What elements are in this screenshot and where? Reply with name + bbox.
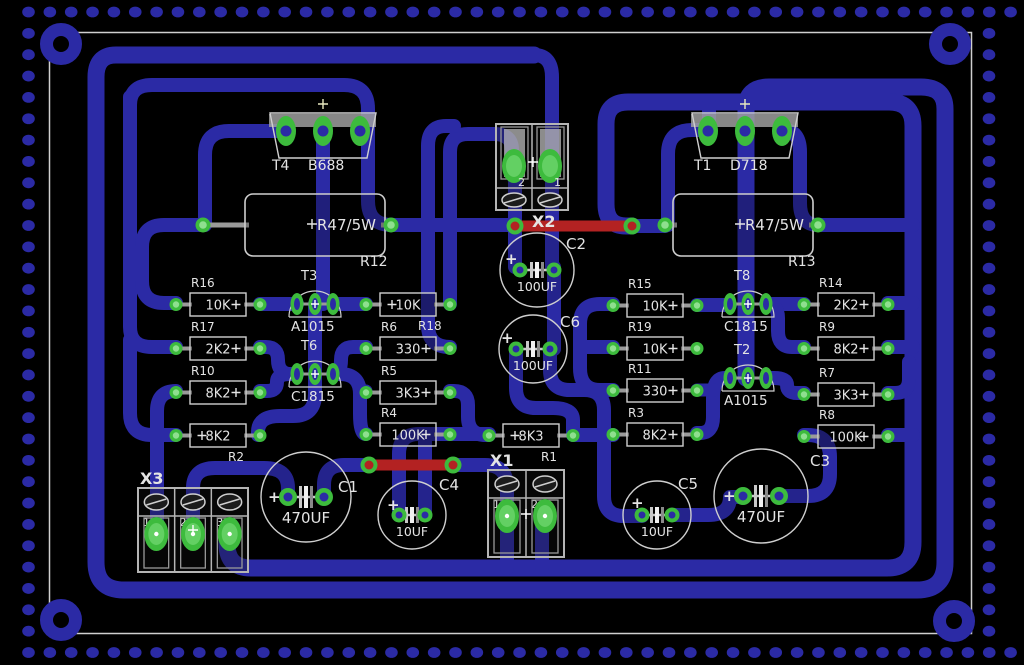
border-dot xyxy=(983,434,996,445)
resistor-ref: R10 xyxy=(191,364,215,378)
border-dot xyxy=(449,7,462,18)
transistor-T6: T6C1815 xyxy=(289,339,341,405)
border-dot xyxy=(898,647,911,658)
mounting-hole xyxy=(47,606,76,635)
border-dot xyxy=(22,391,35,402)
pcb-canvas: R47/5WR12R47/5WR13T4B688T1D718T3A1015T6C… xyxy=(0,0,1024,665)
capacitor-value: 10UF xyxy=(396,524,428,539)
border-dot xyxy=(599,7,612,18)
capacitor-ref: C6 xyxy=(560,313,580,331)
capacitor-ref: C2 xyxy=(566,235,586,253)
border-dot xyxy=(962,7,975,18)
solder-pad-hole xyxy=(739,492,748,501)
border-dot xyxy=(919,7,932,18)
resistor-R19: 10KR19 xyxy=(607,320,704,360)
resistor-value: 3K3 xyxy=(395,387,420,402)
polarity-bar xyxy=(655,507,659,523)
border-dot xyxy=(983,583,996,594)
pad-hole xyxy=(703,126,714,137)
mounting-hole xyxy=(936,30,965,59)
copper-trace xyxy=(888,362,909,393)
border-dot xyxy=(236,7,249,18)
border-dot xyxy=(22,199,35,210)
transistor-T2: T2A1015 xyxy=(722,343,774,409)
border-dot xyxy=(983,241,996,252)
border-dot xyxy=(193,7,206,18)
resistor-value: 8K2 xyxy=(205,430,230,445)
border-dot xyxy=(556,647,569,658)
power-resistor-ref: R12 xyxy=(360,254,388,270)
solder-pad-hole xyxy=(320,493,329,502)
pad-hole xyxy=(281,126,292,137)
border-dot xyxy=(407,647,420,658)
border-dot xyxy=(86,7,99,18)
pad-hole xyxy=(355,126,366,137)
mounting-hole xyxy=(940,607,969,636)
border-dot xyxy=(22,135,35,146)
border-dot xyxy=(22,263,35,274)
border-dot xyxy=(983,284,996,295)
resistor-value: 8K3 xyxy=(518,430,543,445)
polarity-bar xyxy=(535,262,539,278)
border-dot xyxy=(150,7,163,18)
solder-pad-hole xyxy=(814,221,822,229)
border-dot xyxy=(449,647,462,658)
border-dot xyxy=(22,604,35,615)
capacitor-value: 10UF xyxy=(641,524,673,539)
border-dot xyxy=(535,647,548,658)
border-dot xyxy=(22,71,35,82)
border-dot xyxy=(983,113,996,124)
border-dot xyxy=(22,519,35,530)
border-dot xyxy=(22,92,35,103)
pad-mark xyxy=(154,532,158,536)
border-dot xyxy=(983,540,996,551)
border-dot xyxy=(471,647,484,658)
border-dot xyxy=(300,7,313,18)
border-dot xyxy=(278,7,291,18)
transistor-part: C1815 xyxy=(724,319,768,335)
border-dot xyxy=(214,647,227,658)
border-dot xyxy=(172,647,185,658)
border-dot xyxy=(236,647,249,658)
resistor-value: 3K3 xyxy=(833,389,858,404)
resistor-value: 10K xyxy=(642,343,668,358)
border-dot xyxy=(812,7,825,18)
solder-pad-hole xyxy=(570,432,576,438)
capacitor-C4: +10UFC4 xyxy=(378,476,459,549)
via-hole xyxy=(628,222,637,231)
border-dot xyxy=(983,562,996,573)
border-dot xyxy=(620,7,633,18)
border-dot xyxy=(663,7,676,18)
via-hole xyxy=(511,222,520,231)
border-dot xyxy=(684,647,697,658)
resistor-R11: 330R11 xyxy=(607,362,704,402)
capacitor-value: 100UF xyxy=(517,279,557,294)
polarity-bar xyxy=(537,341,540,357)
border-dot xyxy=(22,7,35,18)
border-dot xyxy=(983,263,996,274)
border-dot xyxy=(769,7,782,18)
solder-pad-hole xyxy=(422,512,429,519)
border-dot xyxy=(983,177,996,188)
border-dot xyxy=(684,7,697,18)
border-dot xyxy=(940,647,953,658)
origin-cross-icon xyxy=(318,99,328,109)
polarity-bar xyxy=(526,341,529,357)
solder-pad-hole xyxy=(173,389,179,395)
resistor-ref: R3 xyxy=(628,406,644,420)
terminal-X1: 12X1 xyxy=(488,451,564,557)
capacitor-ref: C4 xyxy=(439,476,459,494)
resistor-R3: 8K2R3 xyxy=(607,406,704,446)
pad-hole xyxy=(294,298,300,310)
solder-pad-hole xyxy=(885,391,891,397)
border-dot xyxy=(705,647,718,658)
border-dot xyxy=(983,348,996,359)
solder-pad-hole xyxy=(661,221,669,229)
resistor-R7: 3K3R7 xyxy=(798,366,895,406)
capacitor-ref: C5 xyxy=(678,475,698,493)
resistor-R14: 2K2R14 xyxy=(798,276,895,316)
power-resistor-value: R47/5W xyxy=(317,216,376,234)
pad-hole xyxy=(294,368,300,380)
polarity-bar xyxy=(310,486,313,508)
border-dot xyxy=(983,519,996,530)
solder-pad-hole xyxy=(801,345,807,351)
mounting-hole xyxy=(47,30,76,59)
solder-pad-hole xyxy=(363,301,369,307)
resistor-ref: R15 xyxy=(628,277,652,291)
border-dot xyxy=(257,647,270,658)
border-dot xyxy=(364,647,377,658)
plus-sign: + xyxy=(268,488,281,506)
solder-pad-hole xyxy=(173,301,179,307)
copper-trace xyxy=(142,225,203,303)
border-dot xyxy=(727,7,740,18)
border-dot xyxy=(428,7,441,18)
border-dot xyxy=(86,647,99,658)
border-dot xyxy=(620,647,633,658)
power-resistor-R12: R47/5WR12 xyxy=(196,194,399,270)
resistor-R18: 10KR18 xyxy=(360,293,457,333)
terminal-pad-inner xyxy=(506,155,522,177)
terminal-ref: X2 xyxy=(532,212,555,231)
power-resistor-ref: R13 xyxy=(788,254,816,270)
resistor-ref: R7 xyxy=(819,366,835,380)
resistor-ref: R18 xyxy=(418,319,442,333)
border-dot xyxy=(535,7,548,18)
resistor-value: 100K xyxy=(391,429,425,444)
via-hole xyxy=(449,461,458,470)
capacitor-ref: C3 xyxy=(810,452,830,470)
border-dot xyxy=(471,7,484,18)
solder-pad-hole xyxy=(284,493,293,502)
solder-pad-hole xyxy=(885,301,891,307)
transistor-ref: T6 xyxy=(300,339,317,354)
border-dot xyxy=(577,7,590,18)
solder-pad-hole xyxy=(447,431,453,437)
border-dot xyxy=(983,370,996,381)
resistor-value: 2K2 xyxy=(833,299,858,314)
solder-pad-hole xyxy=(447,301,453,307)
border-dot xyxy=(22,583,35,594)
border-dot xyxy=(492,647,505,658)
border-dot xyxy=(342,647,355,658)
solder-pad-hole xyxy=(257,389,263,395)
border-dot xyxy=(876,7,889,18)
polarity-bar xyxy=(765,485,768,507)
border-dot xyxy=(342,7,355,18)
transistor-part: A1015 xyxy=(291,319,335,335)
plus-sign: + xyxy=(387,496,400,514)
border-dot xyxy=(983,498,996,509)
border-dot xyxy=(428,647,441,658)
border-dot xyxy=(983,156,996,167)
transistor-T8: T8C1815 xyxy=(722,269,774,335)
border-dot xyxy=(983,306,996,317)
resistor-R15: 10KR15 xyxy=(607,277,704,317)
resistor-value: 2K2 xyxy=(205,343,230,358)
polarity-bar xyxy=(530,262,533,278)
polarity-bar xyxy=(299,486,302,508)
plus-sign: + xyxy=(631,494,644,512)
capacitor-C6: +100UFC6 xyxy=(499,313,580,383)
border-dot xyxy=(492,7,505,18)
capacitor-value: 470UF xyxy=(282,509,330,527)
border-dot xyxy=(748,647,761,658)
capacitor-C5: +10UFC5 xyxy=(623,475,698,549)
resistor-ref: R9 xyxy=(819,320,835,334)
solder-pad-hole xyxy=(694,431,700,437)
transistor-part: D718 xyxy=(730,158,768,174)
resistor-R17: 2K2R17 xyxy=(170,320,267,360)
solder-pad-hole xyxy=(885,345,891,351)
border-dot xyxy=(385,7,398,18)
border-dot xyxy=(22,412,35,423)
terminal-pad-inner xyxy=(542,155,558,177)
border-dot xyxy=(748,7,761,18)
solder-pad-hole xyxy=(885,433,891,439)
resistor-value: 10K xyxy=(642,300,668,315)
pad-hole xyxy=(763,298,769,310)
border-dot xyxy=(108,647,121,658)
border-dot xyxy=(812,647,825,658)
border-dot xyxy=(983,647,996,658)
solder-pad-hole xyxy=(547,346,554,353)
solder-pad-hole xyxy=(551,267,558,274)
border-dot xyxy=(22,370,35,381)
polarity-bar xyxy=(410,507,414,523)
transistor-part: A1015 xyxy=(724,393,768,409)
transistor-T3: T3A1015 xyxy=(289,269,341,335)
border-dot xyxy=(663,647,676,658)
pad-hole xyxy=(740,126,751,137)
border-dot xyxy=(22,498,35,509)
border-dot xyxy=(385,647,398,658)
resistor-R9: 8K2R9 xyxy=(798,320,895,360)
border-dot xyxy=(1004,647,1017,658)
border-dot xyxy=(983,71,996,82)
border-dot xyxy=(22,455,35,466)
pcb-layout-view: R47/5WR12R47/5WR13T4B688T1D718T3A1015T6C… xyxy=(0,0,1024,665)
border-dot xyxy=(983,327,996,338)
resistor-value: 10K xyxy=(205,299,231,314)
transistor-part: C1815 xyxy=(291,389,335,405)
resistor-ref: R17 xyxy=(191,320,215,334)
solder-pad-hole xyxy=(257,432,263,438)
capacitor-C2: +100UFC2 xyxy=(500,233,586,307)
border-dot xyxy=(983,604,996,615)
solder-pad-hole xyxy=(387,221,395,229)
solder-pad-hole xyxy=(639,512,646,519)
capacitor-value: 470UF xyxy=(737,508,785,526)
transistor-ref: T4 xyxy=(271,158,290,174)
terminal-ref: X1 xyxy=(490,451,513,470)
capacitor-value: 100UF xyxy=(513,358,553,373)
border-dot xyxy=(129,647,142,658)
solder-pad-hole xyxy=(610,302,616,308)
border-dot xyxy=(983,476,996,487)
border-dot xyxy=(22,177,35,188)
border-dot xyxy=(599,647,612,658)
solder-pad-hole xyxy=(801,391,807,397)
pad-hole xyxy=(763,372,769,384)
border-dot xyxy=(577,647,590,658)
solder-pad-hole xyxy=(363,389,369,395)
border-dot xyxy=(65,7,78,18)
resistor-R5: 3K3R5 xyxy=(360,364,457,404)
border-dot xyxy=(983,391,996,402)
border-dot xyxy=(22,562,35,573)
plus-sign: + xyxy=(723,487,736,505)
pad-hole xyxy=(318,126,329,137)
solder-pad-hole xyxy=(447,345,453,351)
border-dot xyxy=(22,113,35,124)
solder-pad-hole xyxy=(801,301,807,307)
border-dot xyxy=(513,647,526,658)
plus-sign: + xyxy=(505,250,518,268)
resistor-R16: 10KR16 xyxy=(170,276,267,316)
border-dot xyxy=(834,647,847,658)
pad-mark xyxy=(505,514,509,518)
border-dot xyxy=(855,647,868,658)
pad-hole xyxy=(727,372,733,384)
border-dot xyxy=(44,7,57,18)
border-dot xyxy=(129,7,142,18)
resistor-ref: R1 xyxy=(541,450,557,464)
border-dot xyxy=(65,647,78,658)
border-dot xyxy=(22,49,35,60)
border-dot xyxy=(300,647,313,658)
border-dot xyxy=(22,284,35,295)
border-dot xyxy=(962,647,975,658)
resistor-value: 100K xyxy=(829,431,863,446)
polarity-bar xyxy=(650,507,653,523)
border-dot xyxy=(22,156,35,167)
resistor-value: 8K2 xyxy=(833,343,858,358)
power-transistor-T4: T4B688 xyxy=(269,99,376,174)
transistor-ref: T8 xyxy=(733,269,750,284)
border-dot xyxy=(22,241,35,252)
resistor-ref: R14 xyxy=(819,276,843,290)
border-dot xyxy=(257,7,270,18)
transistor-part: B688 xyxy=(308,158,344,174)
polarity-bar xyxy=(531,341,535,357)
polarity-bar xyxy=(754,485,757,507)
border-dot xyxy=(855,7,868,18)
solder-pad-hole xyxy=(199,221,207,229)
solder-pad-hole xyxy=(447,389,453,395)
transistor-ref: T2 xyxy=(733,343,750,358)
solder-pad-hole xyxy=(775,492,784,501)
border-dot xyxy=(641,647,654,658)
border-dot xyxy=(983,28,996,39)
plus-sign: + xyxy=(501,329,514,347)
pad-mark xyxy=(227,532,231,536)
polarity-bar xyxy=(541,262,544,278)
polarity-bar xyxy=(661,507,664,523)
border-dot xyxy=(983,455,996,466)
border-dot xyxy=(22,348,35,359)
solder-pad-hole xyxy=(610,431,616,437)
border-dot xyxy=(44,647,57,658)
border-dot xyxy=(150,647,163,658)
solder-pad-hole xyxy=(694,345,700,351)
border-dot xyxy=(983,412,996,423)
solder-pad-hole xyxy=(173,345,179,351)
border-dot xyxy=(513,7,526,18)
border-dot xyxy=(834,7,847,18)
solder-pad-hole xyxy=(694,387,700,393)
resistor-ref: R19 xyxy=(628,320,652,334)
border-dot xyxy=(321,7,334,18)
border-dot xyxy=(22,434,35,445)
resistor-value: 330 xyxy=(396,343,421,358)
border-dot xyxy=(983,7,996,18)
border-dot xyxy=(983,626,996,637)
border-dot xyxy=(983,220,996,231)
border-dot xyxy=(22,476,35,487)
solder-pad-hole xyxy=(610,387,616,393)
pad-hole xyxy=(330,368,336,380)
border-dot xyxy=(108,7,121,18)
border-dot xyxy=(641,7,654,18)
border-dot xyxy=(1004,7,1017,18)
border-dot xyxy=(22,647,35,658)
resistor-ref: R11 xyxy=(628,362,652,376)
via-hole xyxy=(365,461,374,470)
border-dot xyxy=(364,7,377,18)
transistor-ref: T1 xyxy=(693,158,711,174)
border-dot xyxy=(791,7,804,18)
border-dot xyxy=(919,647,932,658)
solder-pad-hole xyxy=(694,302,700,308)
transistor-ref: T3 xyxy=(300,269,317,284)
pad-hole xyxy=(777,126,788,137)
resistor-ref: R2 xyxy=(228,450,244,464)
solder-pad-hole xyxy=(801,433,807,439)
border-dot xyxy=(321,647,334,658)
border-dot xyxy=(876,647,889,658)
terminal-ref: X3 xyxy=(140,469,163,488)
border-dot xyxy=(940,7,953,18)
resistor-ref: R4 xyxy=(381,406,397,420)
border-dot xyxy=(193,647,206,658)
resistor-value: 8K2 xyxy=(205,387,230,402)
solder-pad-hole xyxy=(257,345,263,351)
